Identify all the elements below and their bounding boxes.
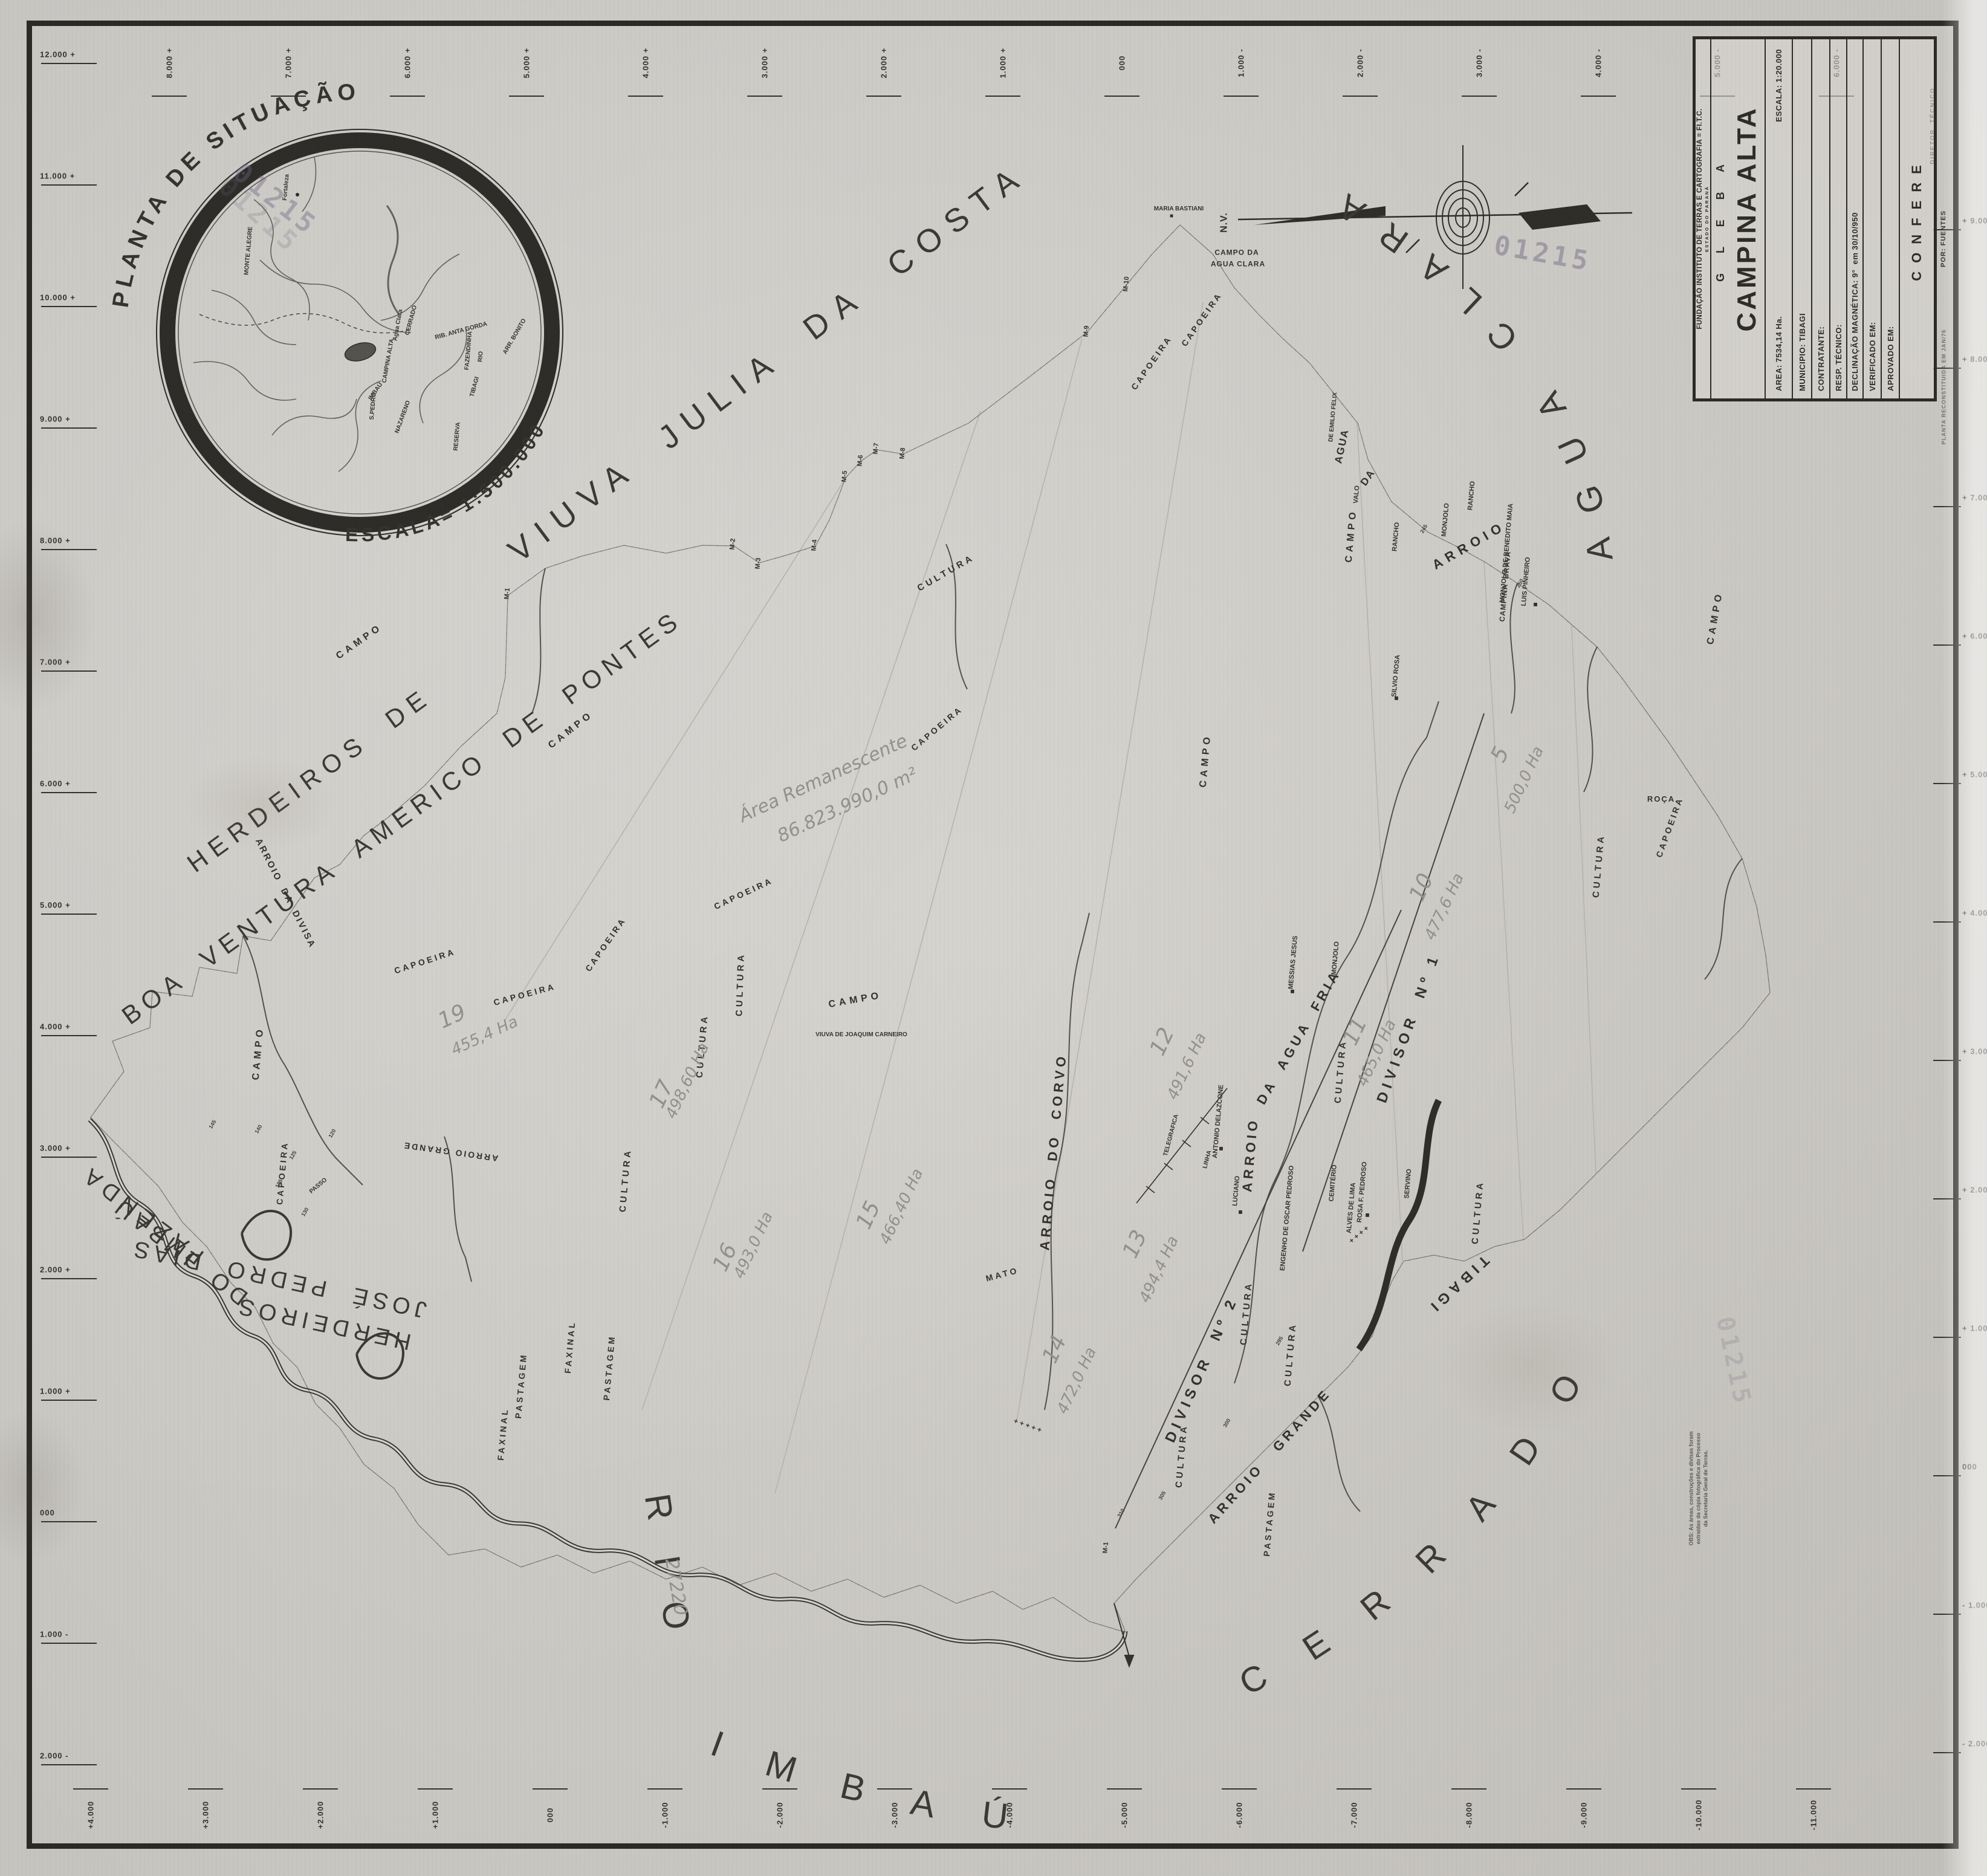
paper-edge — [1942, 0, 1987, 1876]
scanned-map-sheet: PLANTA DE SITUAÇÃO ESCALA= 1:500.000 AGU… — [0, 0, 1987, 1876]
map-border — [27, 21, 1959, 1849]
